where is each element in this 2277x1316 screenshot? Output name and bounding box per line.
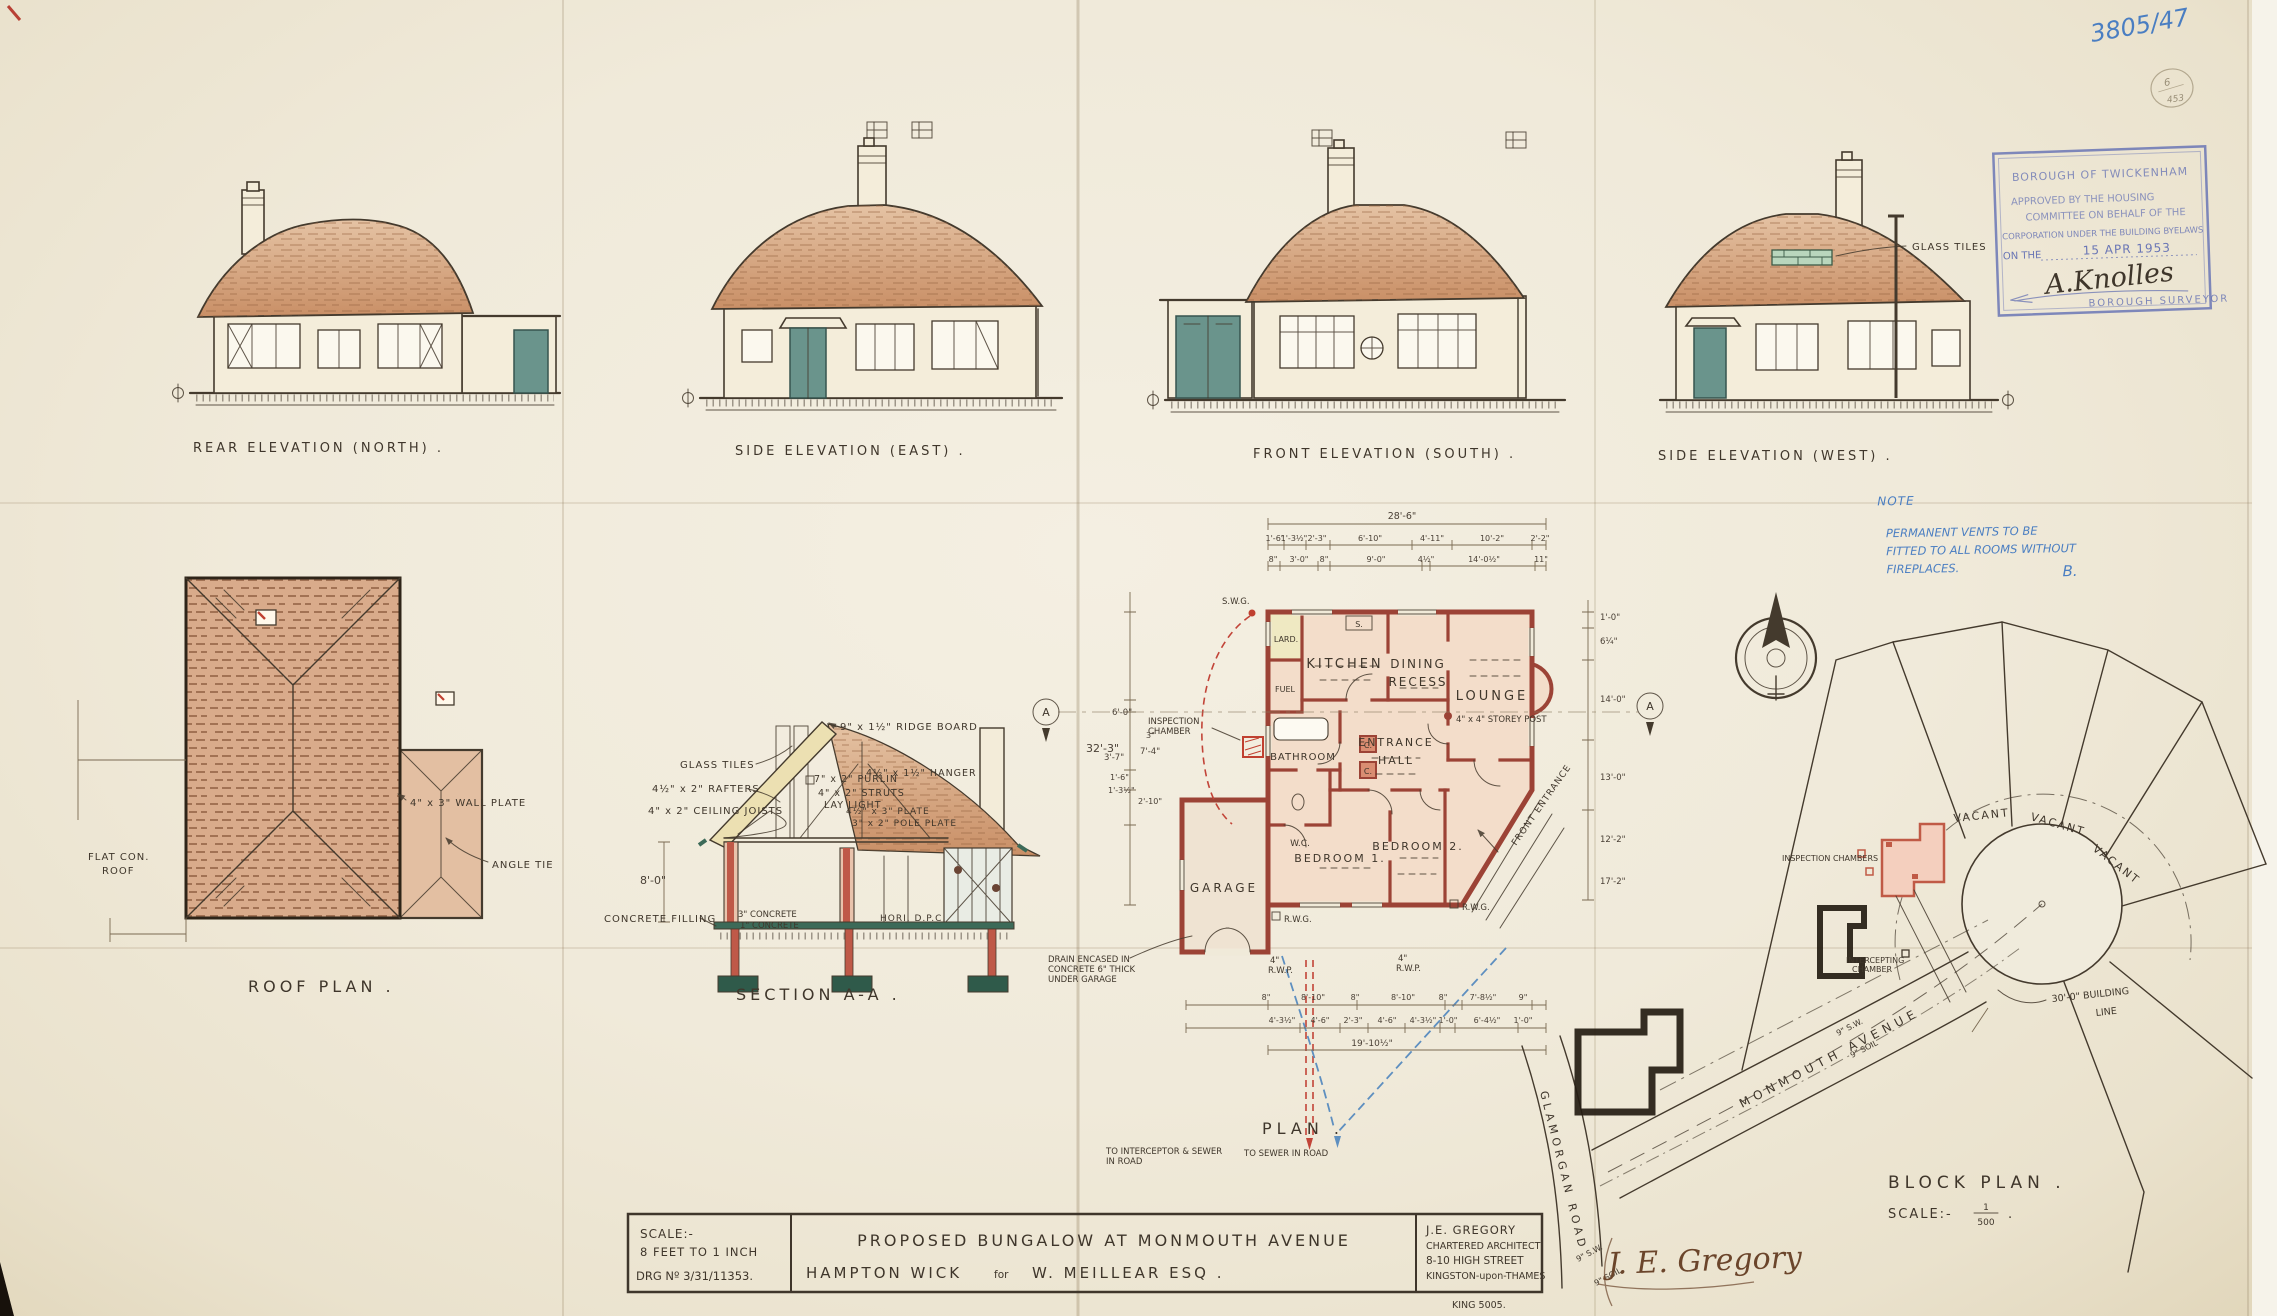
dim: 11" xyxy=(1534,555,1548,564)
dim-top-overall: 28'-6" xyxy=(1388,511,1417,522)
drawing-sheet: REAR ELEVATION (NORTH) . SIDE ELEVATION … xyxy=(0,0,2277,1316)
rear-elevation-label: REAR ELEVATION (NORTH) . xyxy=(193,441,444,456)
dim: 1'-6" xyxy=(1110,773,1129,782)
dim: 1'-3½" xyxy=(1108,786,1135,795)
dining-label-2: RECESS xyxy=(1388,675,1447,689)
intercepting-label-1: INTERCEPTING xyxy=(1846,956,1904,965)
dim: 1'-0" xyxy=(1514,1016,1533,1025)
dim: 8" xyxy=(1269,555,1278,564)
front-elevation: FRONT ELEVATION (SOUTH) . xyxy=(1148,130,1566,462)
road-edge-upper xyxy=(1592,952,1968,1150)
lounge-label: LOUNGE xyxy=(1456,689,1529,704)
angle-tie-label: ANGLE TIE xyxy=(492,860,554,871)
proposed-bungalow-footprint xyxy=(1882,824,1944,896)
west-door xyxy=(1694,328,1726,398)
architect-phone: KING 5005. xyxy=(1452,1300,1506,1311)
glass-tiles-label: GLASS TILES xyxy=(1912,242,1987,253)
swg-label: S.W.G. xyxy=(1222,597,1250,607)
note-line-2: FITTED TO ALL ROOMS WITHOUT xyxy=(1886,541,2077,558)
chimney-plan-detail xyxy=(1506,132,1526,148)
dim: 3" xyxy=(1146,731,1155,740)
wall-plate-label: 4" x 3" WALL PLATE xyxy=(410,798,526,809)
section-marker-a: A xyxy=(1042,706,1050,719)
east-elevation-label: SIDE ELEVATION (EAST) . xyxy=(735,444,966,459)
front-elevation-label: FRONT ELEVATION (SOUTH) . xyxy=(1253,447,1516,462)
section-title: SECTION A-A . xyxy=(736,985,901,1004)
vents-note: NOTE PERMANENT VENTS TO BE FITTED TO ALL… xyxy=(1877,491,2078,583)
section-marker-a: A xyxy=(1646,700,1654,713)
west-elevation-label: SIDE ELEVATION (WEST) . xyxy=(1658,449,1893,464)
dim: 9'-0" xyxy=(1367,555,1386,564)
dim: 13'-0" xyxy=(1600,773,1626,783)
monmouth-avenue-label: MONMOUTH AVENUE xyxy=(1737,1005,1922,1110)
drawing-artwork: REAR ELEVATION (NORTH) . SIDE ELEVATION … xyxy=(0,0,2277,1316)
sewer-note: TO SEWER IN ROAD xyxy=(1243,1149,1329,1159)
window xyxy=(1848,321,1916,369)
flat-roof-label: FLAT CON. xyxy=(88,852,149,863)
window xyxy=(856,324,914,370)
stamp-line-4: CORPORATION UNDER THE BUILDING BYELAWS xyxy=(2002,225,2204,242)
drain-note-3: UNDER GARAGE xyxy=(1048,975,1117,985)
dining-label-1: DINING xyxy=(1390,657,1446,671)
concrete-b-label: 1" CONCRETE xyxy=(740,921,799,931)
dim: 8" xyxy=(1262,993,1271,1002)
architect-signature: J. E. Gregory xyxy=(1598,1238,1804,1306)
chimney-pot xyxy=(247,182,259,191)
scale-numerator: 1 xyxy=(1983,1203,1989,1213)
garage-fill xyxy=(1182,800,1268,952)
dpc-label: HORI. D.P.C. xyxy=(880,914,946,924)
hall-label-1: ENTRANCE xyxy=(1358,736,1433,749)
dim: 8'-10" xyxy=(1391,993,1415,1002)
stamp-date: 15 APR 1953 xyxy=(2082,241,2171,258)
inspection-label-1: INSPECTION xyxy=(1148,717,1199,727)
block-plan: INSPECTION CHAMBERS INTERCEPTING CHAMBER… xyxy=(1522,622,2266,1288)
kitchen-label: KITCHEN xyxy=(1306,657,1383,672)
window xyxy=(378,324,442,368)
fuel-label: FUEL xyxy=(1275,685,1296,694)
chimney-pot xyxy=(1334,140,1344,148)
dim: 7'-8½" xyxy=(1470,993,1497,1002)
scale-denominator: 500 xyxy=(1977,1218,1994,1228)
dim: 2'-3" xyxy=(1344,1016,1363,1025)
dim: 4'-3½" xyxy=(1410,1016,1437,1025)
window xyxy=(742,330,772,362)
post xyxy=(843,848,850,926)
vacant-label: VACANT xyxy=(1953,806,2010,825)
cupboard-label: C. xyxy=(1364,767,1372,776)
storey-post xyxy=(1444,712,1452,720)
drawing-title-for: for xyxy=(994,1269,1009,1281)
dim: 2'-2" xyxy=(1531,534,1550,543)
interceptor-note-2: IN ROAD xyxy=(1106,1157,1143,1167)
hanger-label: 4½" x 1½" HANGER xyxy=(866,768,977,779)
dim: 6¼" xyxy=(1600,637,1618,647)
window xyxy=(228,324,300,368)
inspection-chambers-label: INSPECTION CHAMBERS xyxy=(1782,854,1878,863)
intercepting-label-2: CHAMBER xyxy=(1852,965,1893,974)
dim: 10'-2" xyxy=(1480,534,1504,543)
file-number-handwritten: 3805/47 xyxy=(2088,3,2192,48)
rafters-label: 4½" x 2" RAFTERS xyxy=(652,783,760,795)
window xyxy=(932,321,998,369)
pencil-top: 6 xyxy=(2163,77,2171,89)
drawing-number: DRG Nº 3/31/11353. xyxy=(636,1269,753,1283)
dim: 4½" xyxy=(1418,555,1435,564)
chimney-plan-detail xyxy=(912,122,932,138)
rwp-label-1: 4" xyxy=(1398,954,1407,964)
drain-blue-2 xyxy=(1282,956,1334,1128)
glass-tiles-label: GLASS TILES xyxy=(680,760,755,771)
bedroom1-label: BEDROOM 1. xyxy=(1294,852,1385,865)
level-symbol xyxy=(173,384,184,402)
dim: 6'-0" xyxy=(1112,708,1132,718)
bathroom-label: BATHROOM xyxy=(1270,752,1336,763)
chimney-plan-detail xyxy=(867,122,887,138)
dim: 9" xyxy=(1519,993,1528,1002)
wall-height-dim: 8'-0" xyxy=(640,874,666,887)
approval-stamp: BOROUGH OF TWICKENHAM APPROVED BY THE HO… xyxy=(1993,146,2229,316)
wc-label: W.C. xyxy=(1290,839,1310,849)
ceiling-joists-label: 4" x 2" CEILING JOISTS xyxy=(648,806,783,817)
dim: 6'-4½" xyxy=(1474,1016,1501,1025)
dim: 17'-2" xyxy=(1600,877,1626,887)
level-symbol xyxy=(2003,391,2014,409)
garage-label: GARAGE xyxy=(1190,881,1258,895)
north-compass xyxy=(1736,592,1816,700)
storey-post-label: 4" x 4" STOREY POST xyxy=(1456,715,1547,725)
dim: 4'-6" xyxy=(1311,1016,1330,1025)
architect-role: CHARTERED ARCHITECT xyxy=(1426,1241,1541,1252)
block-plan-title: BLOCK PLAN . xyxy=(1888,1173,2066,1193)
building-line-label-2: LINE xyxy=(2095,1006,2117,1019)
lounge-bay xyxy=(1532,664,1552,714)
plate-label: 4½" x 3" PLATE xyxy=(846,807,930,817)
footing xyxy=(968,976,1008,992)
dim: 7'-4" xyxy=(1140,747,1160,757)
drawing-title-line-1: PROPOSED BUNGALOW AT MONMOUTH AVENUE xyxy=(857,1231,1351,1250)
concrete-filling-label: CONCRETE FILLING xyxy=(604,914,716,925)
stamp-line-3: COMMITTEE ON BEHALF OF THE xyxy=(2025,207,2186,224)
drain-note-2: CONCRETE 6" THICK xyxy=(1048,965,1136,975)
building-line-label-1: 30'-0" BUILDING xyxy=(2051,986,2129,1005)
window xyxy=(1280,316,1354,368)
dim: 3'-0" xyxy=(1290,555,1309,564)
dim: 1'-3½" xyxy=(1281,534,1308,543)
dim: 8" xyxy=(1351,993,1360,1002)
bath xyxy=(1274,718,1328,740)
plan-title: PLAN . xyxy=(1262,1119,1344,1138)
ridge-board-label: 9" x 1½" RIDGE BOARD xyxy=(840,721,978,733)
rear-elevation: REAR ELEVATION (NORTH) . xyxy=(173,182,561,456)
stamp-line-2: APPROVED BY THE HOUSING xyxy=(2011,192,2155,208)
dim: 2'-10" xyxy=(1138,797,1162,806)
floor-plan: C. C. S. FRONT ENTRANCE 4" x 4" STOREY P… xyxy=(1033,511,1663,1167)
existing-building xyxy=(1578,1012,1680,1112)
section-aa: 9" x 1½" RIDGE BOARD GLASS TILES 4½" x 2… xyxy=(604,721,1040,1004)
dim-bottom-overall: 19'-10½" xyxy=(1351,1039,1393,1049)
chimney-pot xyxy=(1842,152,1852,160)
pole-plate-label: 3" x 2" POLE PLATE xyxy=(852,819,957,829)
interceptor-note-1: TO INTERCEPTOR & SEWER xyxy=(1105,1147,1222,1157)
corner-mark xyxy=(8,6,20,20)
scale-value: 8 FEET TO 1 INCH xyxy=(640,1245,758,1259)
hall-label-2: HALL xyxy=(1378,754,1414,767)
door-canopy xyxy=(780,318,846,328)
dim: 4'-11" xyxy=(1420,534,1444,543)
drain-note-1: DRAIN ENCASED IN xyxy=(1048,955,1130,965)
sink-label: S. xyxy=(1355,620,1363,629)
larder-label: LARD. xyxy=(1274,635,1298,644)
window xyxy=(1756,324,1818,370)
dim: 2'-3" xyxy=(1308,534,1327,543)
roof-plan-title: ROOF PLAN . xyxy=(248,977,395,996)
road-edge-lower xyxy=(1620,1002,1986,1198)
dim: 4'-3½" xyxy=(1269,1016,1296,1025)
bedroom2-label: BEDROOM 2. xyxy=(1372,840,1463,853)
window xyxy=(1932,330,1960,366)
roof-plan: 4" x 3" WALL PLATE ANGLE TIE FLAT CON. R… xyxy=(78,578,554,996)
dim: 14'-0½" xyxy=(1468,555,1500,564)
concrete-a-label: 3" CONCRETE xyxy=(738,910,797,920)
dim: 6'-10" xyxy=(1358,534,1382,543)
dim: 8" xyxy=(1439,993,1448,1002)
pencil-note: 6 453 xyxy=(2149,66,2196,109)
inspection-chamber-sq xyxy=(1866,868,1873,875)
rwp-label-2: R.W.P. xyxy=(1268,966,1293,976)
dim: 1'-0" xyxy=(1600,613,1620,623)
stamp-line-1: BOROUGH OF TWICKENHAM xyxy=(2012,165,2189,184)
scan-edge xyxy=(2252,0,2277,1316)
window xyxy=(1398,314,1476,368)
chimney-plan-detail xyxy=(1312,130,1332,146)
dim: 8'-10" xyxy=(1301,993,1325,1002)
rear-door xyxy=(514,330,548,393)
dim: 12'-2" xyxy=(1600,835,1626,845)
struts-label: 4" x 2" STRUTS xyxy=(818,788,905,799)
drain-red-pair xyxy=(1306,960,1313,1136)
level-symbol xyxy=(683,389,694,407)
note-heading: NOTE xyxy=(1877,494,1915,509)
glass-tiles-patch xyxy=(1772,250,1832,265)
torn-corner xyxy=(0,1262,14,1316)
architect-name: J.E. GREGORY xyxy=(1425,1223,1516,1237)
scale-label: SCALE:- xyxy=(640,1227,694,1241)
dim: 8" xyxy=(1320,555,1329,564)
note-initial: B. xyxy=(2062,562,2077,580)
rwg-label: R.W.G. xyxy=(1284,915,1312,925)
rwg-box xyxy=(1272,912,1280,920)
architect-address-1: 8-10 HIGH STREET xyxy=(1426,1255,1524,1267)
level-symbol xyxy=(1148,391,1159,409)
title-block: SCALE:- 8 FEET TO 1 INCH DRG Nº 3/31/113… xyxy=(628,1214,1545,1311)
drawing-title-line-2b: W. MEILLEAR ESQ . xyxy=(1032,1264,1224,1282)
door-canopy xyxy=(1686,318,1740,326)
dim: 4'-6" xyxy=(1378,1016,1397,1025)
scale-dot: . xyxy=(2008,1207,2012,1222)
note-line-3: FIREPLACES. xyxy=(1886,561,1959,576)
rwp-label-1: 4" xyxy=(1270,956,1279,966)
dim: 3'-7" xyxy=(1104,753,1124,763)
flat-roof-label2: ROOF xyxy=(102,866,134,877)
post xyxy=(727,842,734,926)
west-elevation: GLASS TILES SIDE ELEVATION (WEST) . xyxy=(1658,152,2014,464)
signature-text: J. E. Gregory xyxy=(1601,1240,1804,1282)
architect-address-2: KINGSTON-upon-THAMES xyxy=(1426,1271,1545,1282)
note-line-1: PERMANENT VENTS TO BE xyxy=(1886,524,2039,541)
rwp-label-2: R.W.P. xyxy=(1396,964,1421,974)
chimney-pot xyxy=(864,138,874,146)
rwg-label: R.W.G. xyxy=(1462,903,1490,913)
dim: 14'-0" xyxy=(1600,695,1626,705)
drawing-title-line-2a: HAMPTON WICK xyxy=(806,1264,962,1282)
east-elevation: SIDE ELEVATION (EAST) . xyxy=(683,122,1063,459)
drain-red xyxy=(1202,616,1250,824)
block-plan-scale-label: SCALE:- xyxy=(1888,1207,1953,1222)
dim: 1'-0" xyxy=(1439,1016,1458,1025)
stamp-line-5: ON THE xyxy=(2003,250,2042,262)
